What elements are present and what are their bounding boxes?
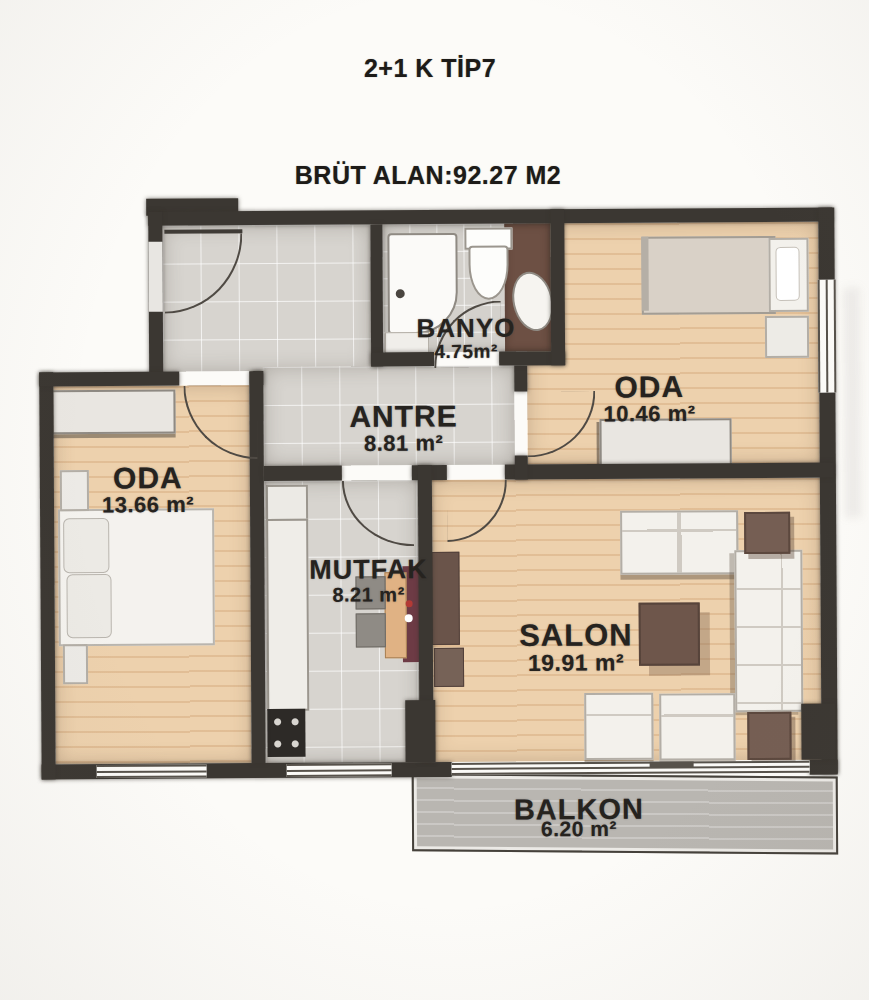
room-label-banyo: BANYO 4.75m² — [416, 315, 515, 361]
sliding-door-handle — [650, 761, 694, 767]
room-label-oda-left: ODA 13.66 m² — [102, 463, 194, 517]
floor-plan-page: 2+1 K TİP7 BRÜT ALAN:92.27 M2 — [0, 0, 869, 1000]
room-area: 4.75m² — [417, 341, 516, 361]
wall-bedroom-right-b — [515, 455, 528, 479]
kitchen-counter — [266, 519, 309, 711]
pillow — [775, 247, 799, 301]
scan-smudge — [844, 287, 861, 517]
wall-bath-left — [370, 224, 383, 366]
sofa-right — [734, 550, 803, 712]
sofa-three-seat — [620, 510, 738, 575]
pillow — [63, 518, 109, 573]
room-area: 19.91 m² — [519, 651, 633, 675]
room-label-oda-right: ODA 10.46 m² — [603, 372, 695, 426]
room-name: ANTRE — [349, 401, 458, 432]
tv-unit — [434, 648, 464, 687]
side-table — [747, 712, 791, 760]
fridge — [266, 485, 308, 521]
bed-single — [641, 236, 775, 315]
pillow — [66, 574, 111, 638]
stove — [267, 709, 305, 757]
wall-bedroom-right-a — [514, 365, 527, 391]
wall-salon-corner-block — [801, 704, 835, 760]
nightstand — [765, 316, 809, 358]
balcony-sliding-door — [452, 761, 810, 775]
room-label-salon: SALON 19.91 m² — [519, 619, 633, 675]
shower-drain — [396, 289, 405, 298]
coffee-table — [639, 602, 700, 665]
room-area: 8.21 m² — [309, 584, 428, 605]
window-bedroom-left — [97, 764, 207, 778]
room-name: ODA — [102, 463, 194, 494]
plan-title: 2+1 K TİP7 — [364, 54, 496, 83]
wall-mid-c — [505, 463, 834, 480]
plan-gross-area-subtitle: BRÜT ALAN:92.27 M2 — [295, 161, 561, 190]
nightstand — [63, 644, 88, 684]
wall-kitchen-corner-block — [405, 700, 435, 762]
tv-unit — [431, 552, 460, 645]
armchair — [659, 693, 735, 760]
entrance-opening — [148, 242, 162, 312]
bed-single-footboard — [641, 237, 648, 311]
wall-bedroom-left-top-a — [39, 372, 179, 387]
wall-bath-right — [550, 209, 565, 365]
room-area: 13.66 m² — [102, 494, 194, 517]
nightstand — [60, 470, 89, 511]
window-kitchen — [287, 763, 392, 777]
room-label-balkon: BALKON 6.20 m² — [514, 795, 644, 840]
room-label-mutfak: MUTFAK 8.21 m² — [309, 556, 428, 605]
chair — [356, 613, 386, 647]
wall-bottom-right — [810, 760, 838, 775]
room-label-antre: ANTRE 8.81 m² — [349, 401, 458, 455]
room-name: BANYO — [416, 315, 515, 342]
room-area: 8.81 m² — [349, 432, 457, 455]
armchair — [584, 693, 653, 760]
room-name: SALON — [519, 619, 633, 651]
bed-single-headboard — [768, 238, 808, 312]
table-decor — [405, 614, 413, 622]
side-table — [744, 512, 790, 554]
wall-mid-a — [264, 466, 342, 481]
room-name: ODA — [603, 372, 695, 403]
window-bedroom-right — [818, 280, 837, 393]
floor-plan: BANYO 4.75m² ODA 10.46 m² ANTRE 8.81 m² … — [0, 0, 869, 1000]
room-name: MUTFAK — [309, 556, 428, 584]
room-area: 10.46 m² — [603, 402, 695, 425]
wardrobe — [51, 390, 175, 435]
wall-left — [39, 372, 55, 779]
